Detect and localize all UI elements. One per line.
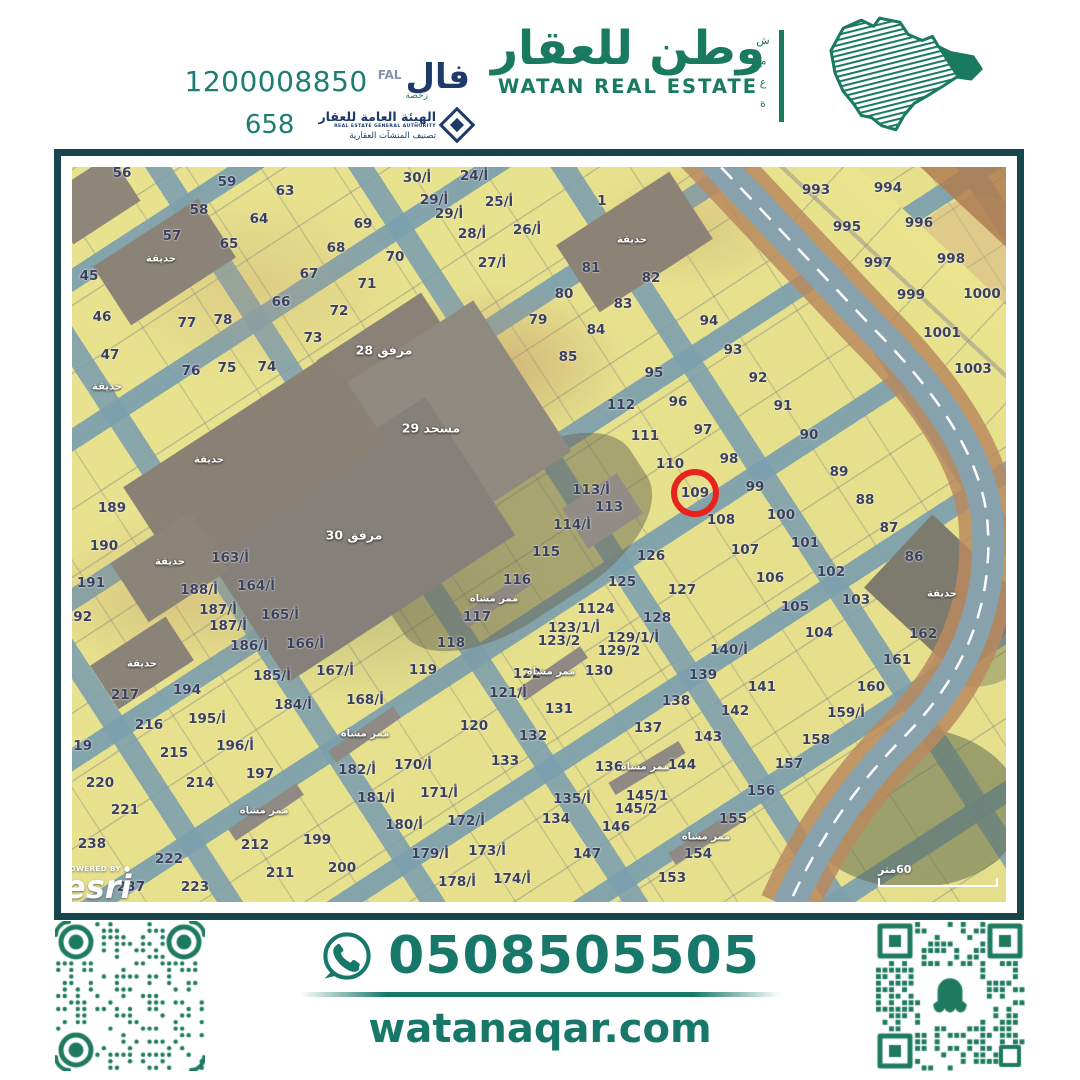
area-label: ممر مشاه (621, 762, 670, 773)
plot-number: 223 (181, 879, 209, 895)
plot-number: 97 (694, 422, 713, 438)
plot-number: 998 (937, 251, 965, 267)
plot-number: 76 (182, 363, 201, 379)
area-label: ممر مشاه (341, 729, 390, 740)
plot-number: 106 (756, 570, 784, 586)
plot-number: 127 (668, 582, 696, 598)
area-label: حديقة (617, 235, 647, 246)
plot-number: 168/أ (346, 692, 384, 708)
plot-number: 999 (897, 287, 925, 303)
plot-number: 158 (802, 732, 830, 748)
plot-number: 27/أ (478, 255, 506, 271)
plot-number: 57 (163, 228, 182, 244)
esri-watermark: POWERED BY ● esri (72, 865, 132, 902)
plot-number: 79 (529, 312, 548, 328)
brand-arabic-title: وطن للعقار (488, 24, 768, 73)
plot-number: 146 (602, 819, 630, 835)
classification-number: 658 (245, 110, 295, 140)
plot-number: 155 (719, 811, 747, 827)
plot-number: 130 (585, 663, 613, 679)
plot-number: 1001 (923, 325, 961, 341)
rega-english-name: REAL ESTATE GENERAL AUTHORITY (318, 124, 436, 129)
plot-number: 184/أ (274, 697, 312, 713)
parcel-map: 5659635864576965684567716672467778734776… (72, 167, 1006, 902)
scale-label: 60متر (878, 863, 911, 876)
plot-number: 194 (173, 682, 201, 698)
plot-number: 139 (689, 667, 717, 683)
area-label: حديقة (127, 659, 157, 670)
plot-number: 75 (218, 360, 237, 376)
whatsapp-icon (320, 929, 374, 983)
brand-english-title: WATAN REAL ESTATE (488, 75, 768, 98)
rega-tagline: تصنيف المنشآت العقارية (318, 131, 436, 141)
plot-number: 121/أ (489, 685, 527, 701)
plot-number: 142 (721, 703, 749, 719)
plot-number: 161 (883, 652, 911, 668)
plot-number: 180/أ (385, 817, 423, 833)
plot-number: 199 (303, 832, 331, 848)
plot-number: 101 (791, 535, 819, 551)
plot-number: 135/أ (553, 791, 591, 807)
rega-diamond-icon (444, 112, 470, 138)
license-block: 1200008850 FAL فال رخصة 658 الهيئة العام… (150, 62, 470, 141)
plot-layer: 5659635864576965684567716672467778734776… (72, 167, 1006, 902)
plot-number: 113/أ (572, 482, 610, 498)
plot-number: 144 (668, 757, 696, 773)
plot-number: 222 (155, 851, 183, 867)
plot-number: 91 (774, 398, 793, 414)
plot-number: 186/أ (230, 638, 268, 654)
plot-number: 95 (645, 365, 664, 381)
area-label: ممر مشاه (527, 667, 576, 678)
plot-number: 115 (532, 544, 560, 560)
plot-number: 191 (77, 575, 105, 591)
plot-number: 108 (707, 512, 735, 528)
plot-number: 187/أ (209, 618, 247, 634)
plot-number: 167/أ (316, 663, 354, 679)
plot-number: 112 (607, 397, 635, 413)
plot-number: 179/أ (411, 846, 449, 862)
plot-number: 136 (595, 759, 623, 775)
plot-number: 181/أ (357, 790, 395, 806)
plot-number: 170/أ (394, 757, 432, 773)
plot-number: 111 (631, 428, 659, 444)
website-qr-code (55, 921, 205, 1071)
plot-number: 126 (637, 548, 665, 564)
plot-number: 92 (749, 370, 768, 386)
plot-number: 73 (304, 330, 323, 346)
plot-number: 1000 (963, 286, 1001, 302)
plot-number: 120 (460, 718, 488, 734)
plot-number: 143 (694, 729, 722, 745)
plot-number: 219 (72, 738, 92, 754)
plot-number: 192 (72, 609, 92, 625)
plot-number: 212 (241, 837, 269, 853)
plot-number: 26/أ (513, 222, 541, 238)
plot-number: 30/أ (403, 170, 431, 186)
fal-latin-label: FAL (378, 68, 402, 82)
plot-number: 99 (746, 479, 765, 495)
plot-number: 994 (874, 180, 902, 196)
area-label: حديقة (92, 382, 122, 393)
plot-number: 182/أ (338, 762, 376, 778)
plot-number: 117 (463, 609, 491, 625)
area-label: حديقة (194, 455, 224, 466)
plot-number: 125 (608, 574, 636, 590)
plot-number: 25/أ (485, 194, 513, 210)
plot-number: 162 (909, 626, 937, 642)
plot-number: 217 (111, 687, 139, 703)
plot-number: 200 (328, 860, 356, 876)
plot-number: 165/أ (261, 607, 299, 623)
plot-number: 28/أ (458, 226, 486, 242)
plot-number: 178/أ (438, 874, 476, 890)
plot-number: 84 (587, 322, 606, 338)
esri-label: esri (72, 873, 132, 902)
plot-number: 159/أ (827, 705, 865, 721)
plot-number: 100 (767, 507, 795, 523)
plot-number: 64 (250, 211, 269, 227)
plot-number: 995 (833, 219, 861, 235)
plot-number: 65 (220, 236, 239, 252)
area-label: حديقة (927, 589, 957, 600)
plot-number: 96 (669, 394, 688, 410)
phone-number: 0508505505 (388, 926, 760, 986)
plot-number: 190 (90, 538, 118, 554)
plot-number: 123/2 (538, 633, 581, 649)
plot-number: 160 (857, 679, 885, 695)
plot-number: 131 (545, 701, 573, 717)
area-label: ممر مشاه (470, 594, 519, 605)
plot-number: 88 (856, 492, 875, 508)
plot-number: 238 (78, 836, 106, 852)
plot-number: 107 (731, 542, 759, 558)
map-frame: 5659635864576965684567716672467778734776… (54, 149, 1024, 920)
map-scale: 60متر (878, 863, 998, 887)
plot-number: 1 (597, 193, 606, 209)
plot-number: 68 (327, 240, 346, 256)
fal-license-number: 1200008850 (185, 65, 368, 98)
plot-number: 98 (720, 451, 739, 467)
plot-number: 153 (658, 870, 686, 886)
plot-number: 114/أ (553, 517, 591, 533)
rega-arabic-name: الهيئة العامة للعقار (318, 109, 436, 124)
plot-number: 29/أ (435, 206, 463, 222)
plot-number: 164/أ (237, 578, 275, 594)
plot-number: 90 (800, 427, 819, 443)
plot-number: 137 (634, 720, 662, 736)
plot-number: 47 (101, 347, 120, 363)
plot-number: 132 (519, 728, 547, 744)
plot-number: 196/أ (216, 738, 254, 754)
plot-number: 77 (178, 315, 197, 331)
plot-number: 216 (135, 717, 163, 733)
plot-number: 189 (98, 500, 126, 516)
plot-number: 81 (582, 260, 601, 276)
plot-number: 163/أ (211, 550, 249, 566)
plot-number: 157 (775, 756, 803, 772)
plot-number: 187/أ (199, 602, 237, 618)
plot-number: 154 (684, 846, 712, 862)
plot-number: 67 (300, 266, 319, 282)
plot-number: 56 (113, 167, 132, 181)
plot-number: 93 (724, 342, 743, 358)
area-label: ممر مشاه (682, 832, 731, 843)
plot-number: 113 (595, 499, 623, 515)
plot-number: 72 (330, 303, 349, 319)
plot-number: 138 (662, 693, 690, 709)
plot-number: 147 (573, 846, 601, 862)
contact-block: 0508505505 watanaqar.com (290, 926, 790, 1052)
plot-number: 80 (555, 286, 574, 302)
plot-number: 102 (817, 564, 845, 580)
plot-number: 993 (802, 182, 830, 198)
plot-number: 220 (86, 775, 114, 791)
plot-number: 87 (880, 520, 899, 536)
plot-number: 128 (643, 610, 671, 626)
plot-number: 104 (805, 625, 833, 641)
plot-number: 195/أ (188, 711, 226, 727)
plot-number: 156 (747, 783, 775, 799)
plot-number: 221 (111, 802, 139, 818)
plot-number: 214 (186, 775, 214, 791)
plot-number: 116 (503, 572, 531, 588)
area-label: مسجد 29 (402, 421, 460, 436)
plot-number: 94 (700, 313, 719, 329)
plot-number: 145/2 (615, 801, 658, 817)
plot-number: 133 (491, 753, 519, 769)
plot-number: 82 (642, 270, 661, 286)
plot-number: 86 (905, 549, 924, 565)
brand-block: وطن للعقار WATAN REAL ESTATE (488, 24, 768, 98)
plot-number: 69 (354, 216, 373, 232)
plot-number: 105 (781, 599, 809, 615)
scale-bar (878, 878, 998, 887)
plot-number: 1003 (954, 361, 992, 377)
plot-number: 85 (559, 349, 578, 365)
brand-divider-bar (779, 30, 784, 122)
plot-number: 173/أ (468, 843, 506, 859)
plot-number: 211 (266, 865, 294, 881)
plot-number: 70 (386, 249, 405, 265)
plot-number: 45 (80, 268, 99, 284)
footer-divider (300, 992, 780, 997)
plot-number: 129/2 (598, 643, 641, 659)
brand-vertical-word: شمعة (753, 30, 773, 114)
plot-number: 78 (214, 312, 233, 328)
plot-number: 74 (258, 359, 277, 375)
plot-number: 1124 (577, 601, 615, 617)
plot-number: 172/أ (447, 813, 485, 829)
plot-number: 166/أ (286, 636, 324, 652)
plot-number: 119 (409, 662, 437, 678)
plot-number: 83 (614, 296, 633, 312)
plot-number: 996 (905, 215, 933, 231)
plot-number: 215 (160, 745, 188, 761)
flyer-page: 1200008850 FAL فال رخصة 658 الهيئة العام… (0, 0, 1080, 1080)
plot-number: 174/أ (493, 871, 531, 887)
plot-number: 197 (246, 766, 274, 782)
highlight-circle-plot-109 (671, 469, 719, 517)
plot-number: 185/أ (253, 668, 291, 684)
plot-number: 71 (358, 276, 377, 292)
plot-number: 46 (93, 309, 112, 325)
snapchat-qr-code (875, 921, 1025, 1071)
plot-number: 134 (542, 811, 570, 827)
plot-number: 171/أ (420, 785, 458, 801)
plot-number: 63 (276, 183, 295, 199)
plot-number: 89 (830, 464, 849, 480)
saudi-map-logo (798, 6, 1010, 148)
plot-number: 58 (190, 202, 209, 218)
area-label: مرفق 30 (326, 528, 383, 543)
area-label: حديقة (155, 557, 185, 568)
area-label: ممر مشاه (240, 806, 289, 817)
area-label: مرفق 28 (356, 343, 413, 358)
plot-number: 66 (272, 294, 291, 310)
plot-number: 103 (842, 592, 870, 608)
plot-number: 118 (437, 635, 465, 651)
plot-number: 24/أ (460, 168, 488, 184)
fal-logo: FAL فال رخصة (378, 62, 470, 101)
plot-number: 141 (748, 679, 776, 695)
plot-number: 997 (864, 255, 892, 271)
plot-number: 110 (656, 456, 684, 472)
rega-logo: الهيئة العامة للعقار REAL ESTATE GENERAL… (318, 109, 470, 141)
plot-number: 59 (218, 174, 237, 190)
area-label: حديقة (146, 254, 176, 265)
plot-number: 188/أ (180, 582, 218, 598)
website-url: watanaqar.com (290, 1006, 790, 1052)
plot-number: 140/أ (710, 642, 748, 658)
